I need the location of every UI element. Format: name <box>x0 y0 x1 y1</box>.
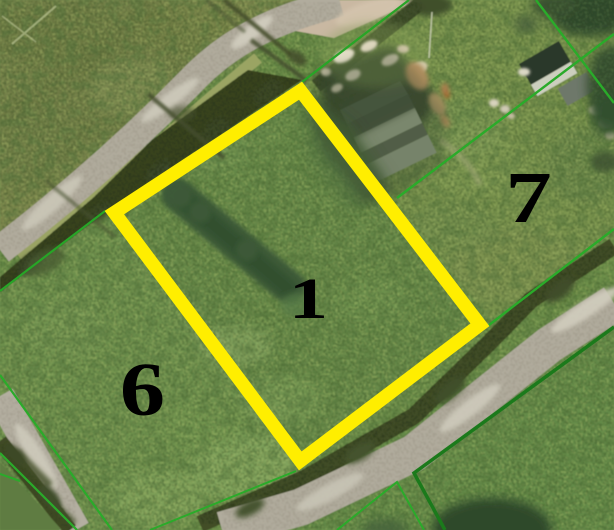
svg-text:1: 1 <box>289 267 328 331</box>
svg-text:7: 7 <box>505 158 551 238</box>
svg-text:6: 6 <box>120 349 165 433</box>
